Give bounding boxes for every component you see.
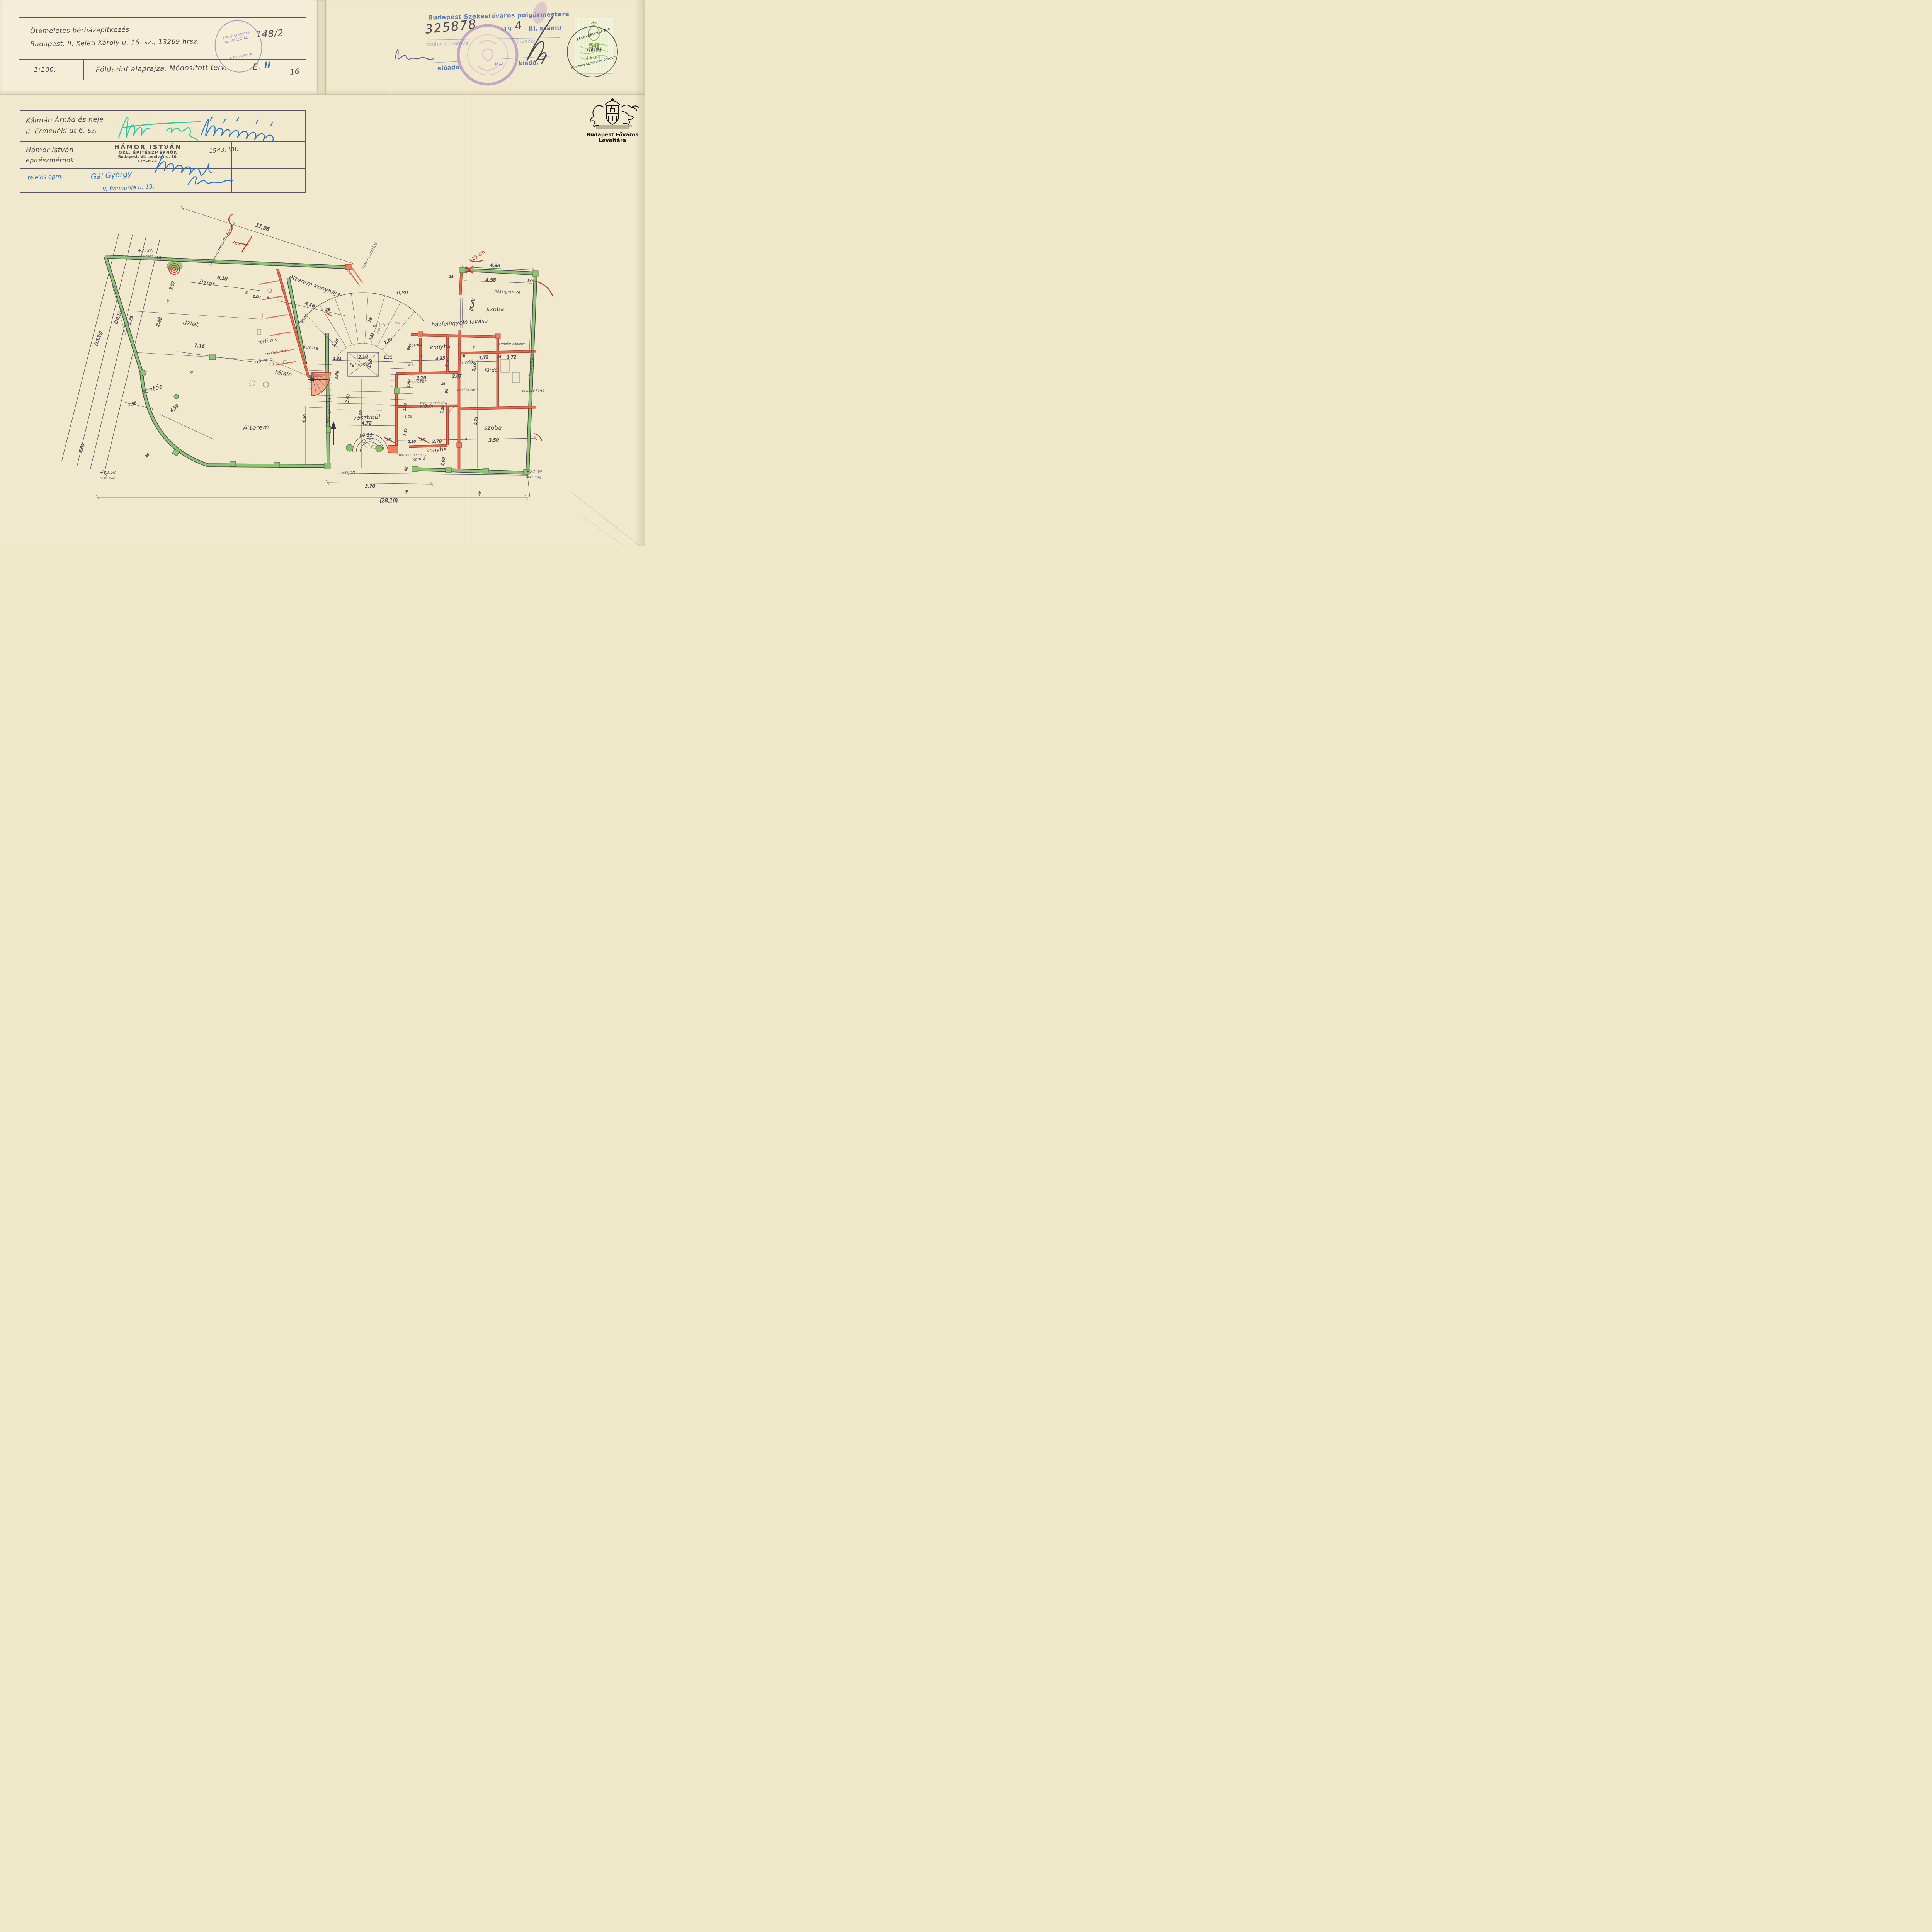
plan-label-dim: 8 bbox=[267, 296, 269, 300]
plan-label-room: házfelügyelő lakása bbox=[431, 318, 488, 328]
file-roman-numeral: II bbox=[264, 61, 270, 70]
plan-label-dim: 4,58 bbox=[486, 277, 497, 283]
plan-label-room: termofor kémény bbox=[399, 453, 426, 457]
architect-name: Hámor István bbox=[26, 146, 74, 154]
plan-label-room: étterem bbox=[243, 423, 269, 432]
overall-dimension-line bbox=[96, 495, 528, 500]
project-title-line1: Ötemeletes bérházépitkezés bbox=[30, 26, 129, 35]
owner-block: Kálmán Árpád és neje II. Ermelléki ut 6.… bbox=[20, 110, 306, 193]
paper-seam-vertical bbox=[317, 0, 326, 94]
plan-label-dim: 3,35 bbox=[435, 355, 445, 361]
plan-label-room: átszell. bbox=[300, 312, 309, 324]
plan-label-dim: 28 bbox=[145, 453, 150, 459]
plan-label-level: +22,09 bbox=[526, 469, 542, 474]
floor-plan: üzletüzletsöntésétteremétterem konyhájat… bbox=[61, 198, 564, 521]
plan-label-level: +0,15 bbox=[359, 432, 373, 438]
plan-label-room: üzlet bbox=[182, 318, 199, 328]
plan-label-dim: 6 bbox=[420, 354, 422, 358]
plan-label-dim: 1,00 bbox=[253, 295, 261, 300]
plan-label-dim: 1,20 bbox=[403, 428, 408, 437]
plan-label-room: hőszigetelve bbox=[494, 289, 520, 295]
plan-label-dim: 1,72 bbox=[479, 355, 488, 360]
crown-icon bbox=[591, 21, 597, 24]
plan-label-dim: 1,50 bbox=[128, 401, 137, 407]
plan-label-dim: 1,31 bbox=[384, 355, 392, 360]
plan-label-dim: 12 bbox=[386, 438, 391, 442]
clerk-signature bbox=[390, 41, 444, 68]
sheet-number: 16 bbox=[289, 67, 300, 77]
plan-label-room: termofor kémény bbox=[373, 321, 401, 328]
plan-label-dim: 8 bbox=[167, 299, 168, 303]
stamp-date: 1943. VII. bbox=[209, 145, 239, 154]
plan-label-dim: 1,31 bbox=[368, 332, 375, 341]
plan-label-dim: 28 bbox=[449, 275, 454, 279]
plan-label-dim: 3,02 bbox=[440, 457, 446, 466]
plan-text-layer: üzletüzletsöntésétteremétterem konyhájat… bbox=[78, 221, 544, 504]
scale-label: 1:100. bbox=[34, 66, 56, 74]
title-block: Ötemeletes bérházépitkezés Budapest, II.… bbox=[19, 17, 306, 80]
plan-label-room: fürdő bbox=[460, 359, 473, 366]
builder-signature bbox=[183, 169, 237, 192]
plan-label-room: felvonó bbox=[349, 361, 369, 369]
plan-label-room: w.c. bbox=[408, 363, 415, 367]
plan-label-dim: 4,30 bbox=[302, 414, 308, 423]
plan-label-dim: 2,10 bbox=[358, 354, 368, 360]
plan-label-dim: 6 bbox=[465, 438, 467, 441]
plan-label-room: tálaló bbox=[275, 369, 293, 378]
griffin-supporter bbox=[621, 105, 639, 124]
plan-label-room: szellőző kürtő bbox=[522, 389, 544, 393]
plan-label-dim: 5,00 bbox=[78, 443, 86, 453]
plan-label-dim: 4,98 bbox=[490, 263, 501, 269]
archive-logo: Budapest Főváros Levéltára bbox=[582, 97, 643, 140]
torn-right-edge bbox=[635, 0, 645, 546]
coat-of-arms-icon bbox=[582, 97, 643, 131]
plan-label-dim: 1,72 bbox=[507, 354, 516, 360]
plan-label-room: szoba bbox=[484, 424, 502, 431]
plan-label-dim: 6 bbox=[463, 354, 465, 358]
approval-stamp-block: Budapest Székesfőváros polgármestere 325… bbox=[417, 8, 580, 89]
plan-label-room: fürdő bbox=[485, 367, 498, 373]
plan-label-dim: 6 bbox=[473, 345, 474, 349]
plan-label-dim: 3,70 bbox=[365, 483, 376, 489]
plan-label-room: női w.c. bbox=[255, 356, 274, 364]
tervtar-stamp-line3: ✱ TERVTÁRA ✱ bbox=[229, 53, 252, 61]
green-block bbox=[209, 355, 216, 360]
plan-label-room: étterem konyhája bbox=[288, 273, 341, 298]
plan-label-room: üzlet bbox=[199, 278, 216, 288]
main-staircase bbox=[296, 293, 425, 445]
responsible-address: V. Pannonia u. 19. bbox=[102, 183, 155, 192]
plan-label-dim: 1,10 bbox=[332, 338, 340, 348]
plan-label-level: +23,68 bbox=[100, 470, 116, 475]
shield bbox=[606, 106, 619, 124]
plant-circle bbox=[376, 445, 383, 452]
plan-label-room: szoba bbox=[486, 306, 504, 313]
responsible-label: felelős épm. bbox=[27, 173, 63, 181]
plan-label-level: absz. mag. bbox=[526, 476, 542, 479]
owner-name: Kálmán Árpád és neje bbox=[26, 116, 104, 125]
plan-label-room: kamra bbox=[303, 344, 319, 351]
plan-label-dim: 3,50 bbox=[345, 394, 351, 403]
plan-label-dim: 1,10 bbox=[383, 337, 393, 345]
plan-label-dim: 1,50 bbox=[440, 405, 445, 414]
plan-label-note: 25 cm bbox=[471, 249, 486, 262]
plan-label-level: −0,80 bbox=[393, 290, 408, 296]
central-chimney bbox=[167, 261, 182, 274]
plan-label-dim: 90 bbox=[445, 389, 449, 394]
scanned-drawing-page: Ötemeletes bérházépitkezés Budapest, II.… bbox=[0, 0, 645, 546]
project-title-line2: Budapest, II. Keleti Károly u. 16. sz., … bbox=[30, 37, 199, 48]
plan-label-level: absz. mag. bbox=[100, 476, 116, 480]
archive-logo-text: Budapest Főváros Levéltára bbox=[582, 132, 643, 144]
plan-label-dim: 7,16 bbox=[194, 342, 205, 349]
plan-label-dim: 1,50 bbox=[406, 379, 412, 388]
stamp-crest-squiggle bbox=[478, 41, 497, 70]
plan-label-dim: 28 bbox=[156, 256, 161, 260]
plan-label-dim: 11,96 bbox=[255, 223, 270, 233]
plan-label-dim: 2,60 bbox=[155, 316, 163, 327]
drawing-title: Földszint alaprajza. Módositott terv. bbox=[96, 63, 227, 74]
plan-label-room: szellőző kürtő bbox=[265, 349, 287, 356]
revenue-stamp: 50 FILLÉR 1934 FELÜLBÉLYEGEZVE 3769/42 B… bbox=[575, 18, 613, 73]
wife-signature bbox=[190, 112, 303, 143]
plan-label-dim: (15,10) bbox=[93, 330, 104, 347]
plan-label-room: termofor kémény bbox=[497, 342, 525, 345]
plant-circle bbox=[346, 444, 353, 451]
plan-label-room: kamra bbox=[413, 457, 426, 462]
plan-label-dim: 94 bbox=[407, 345, 412, 350]
plan-label-dim: 2,70 bbox=[432, 439, 442, 444]
ph-label: P.H. bbox=[495, 62, 505, 68]
plan-label-dim: 1,24 bbox=[403, 403, 408, 412]
plan-label-room: vezuv „szellőző” bbox=[361, 240, 379, 269]
owner-address: II. Ermelléki ut 6. sz. bbox=[26, 126, 97, 135]
plan-label-dim: 28 bbox=[477, 491, 482, 496]
responsible-name: Gál György bbox=[90, 170, 132, 181]
plan-label-dim: 6 bbox=[245, 291, 248, 295]
plan-label-dim: 4,30 bbox=[169, 403, 180, 413]
paper-seam-horizontal bbox=[0, 94, 645, 95]
plan-label-room: konyha bbox=[426, 446, 447, 454]
plan-label-level: absz.mag bbox=[139, 254, 153, 258]
plan-label-dim: 28 bbox=[325, 308, 330, 312]
plan-label-room: férfi w.c. bbox=[258, 336, 280, 345]
plan-label-dim: (5,20) bbox=[469, 298, 476, 311]
plan-label-dim: 4,72 bbox=[361, 420, 372, 426]
plan-label-room: termofor kémény bbox=[420, 401, 447, 405]
plan-label-dim: 82 bbox=[404, 466, 409, 471]
plan-label-note: 1,5 bbox=[231, 239, 241, 247]
plant-circle bbox=[174, 394, 179, 399]
plan-label-dim: 6,10 bbox=[217, 275, 228, 282]
plan-label-dim: 3,08 bbox=[334, 371, 340, 380]
plan-label-dim: 12 bbox=[420, 438, 425, 442]
plan-label-dim: 28 bbox=[404, 489, 409, 494]
lion-supporter bbox=[590, 105, 604, 127]
architect-role: építészmérnök bbox=[26, 156, 74, 164]
plan-label-dim: 3,07 bbox=[168, 280, 176, 291]
plan-label-level: +1,05 bbox=[401, 415, 412, 419]
plan-label-dim: 2,07 bbox=[452, 373, 462, 379]
plan-label-dim: 25 bbox=[368, 317, 374, 323]
plan-label-level: ±0,00 bbox=[341, 470, 355, 476]
plan-label-dim: 2,20 bbox=[417, 375, 426, 381]
fold-line bbox=[570, 492, 645, 546]
bay-window-hatch bbox=[348, 267, 362, 284]
plan-label-room: szellőző kürtő bbox=[456, 388, 478, 392]
ph-round-stamp: P.H. bbox=[456, 21, 520, 87]
plan-label-dim: 3,50 bbox=[488, 437, 499, 443]
plan-label-dim: 1,31 bbox=[333, 357, 342, 361]
plan-label-dim: 1,10 bbox=[408, 440, 416, 444]
plan-label-dim: 8 bbox=[190, 371, 193, 374]
plan-label-dim: 16 bbox=[497, 355, 501, 359]
plan-label-dim: 2,70 bbox=[445, 358, 451, 367]
interior-lines bbox=[112, 260, 533, 376]
plan-label-dim: 8,75 bbox=[126, 315, 134, 326]
plan-label-level: +23,65 bbox=[138, 248, 154, 253]
plan-label-dim: 12 bbox=[527, 279, 532, 282]
fold-line bbox=[580, 514, 645, 546]
plan-label-dim: 4,16 bbox=[304, 300, 316, 309]
crown bbox=[605, 98, 620, 105]
plan-label-dim: (28,10) bbox=[379, 498, 398, 504]
plan-label-dim: 16 bbox=[441, 382, 445, 386]
plan-label-dim: 5,21 bbox=[473, 416, 479, 425]
